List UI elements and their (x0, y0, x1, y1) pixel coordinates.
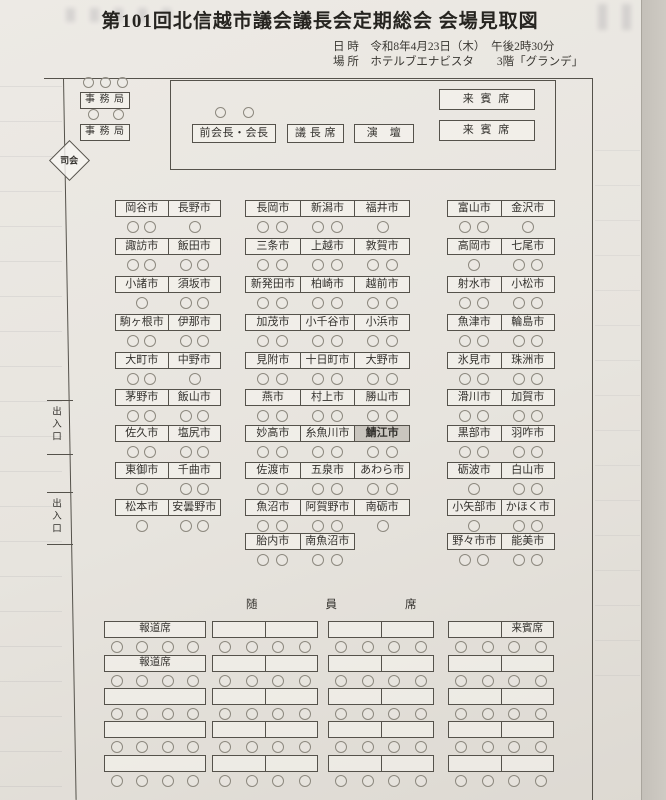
seat-circle (312, 259, 324, 271)
door-tick (47, 544, 73, 545)
seat-circle (180, 446, 192, 458)
seat-circle (335, 741, 347, 753)
attendant-seats-label: 随員席 (246, 596, 485, 612)
secretariat-box: 事 務 局 (80, 124, 130, 141)
head-table-label: 前会長・会長 (193, 125, 275, 142)
seat-circle (386, 335, 398, 347)
attendant-cell (213, 689, 265, 704)
city-name-cell: 塩尻市 (168, 426, 221, 441)
seat-circle (386, 446, 398, 458)
seat-circle (127, 373, 139, 385)
attendant-cell (329, 756, 381, 771)
seat-circle (388, 641, 400, 653)
seat-circle (459, 221, 471, 233)
seat-circle (312, 410, 324, 422)
seat-circle (335, 675, 347, 687)
attendant-cell (449, 656, 501, 671)
seat-circle (367, 335, 379, 347)
city-table: 高岡市七尾市 (447, 238, 555, 255)
seat-circle (111, 675, 123, 687)
seat-circle (477, 410, 489, 422)
seat-circle (276, 554, 288, 566)
city-name-cell: 福井市 (354, 201, 409, 216)
seat-circle (531, 259, 543, 271)
seat-circle (335, 641, 347, 653)
seat-circle (367, 446, 379, 458)
seat-circle (246, 641, 258, 653)
seat-circle (513, 410, 525, 422)
seat-circle (455, 641, 467, 653)
seat-circle (312, 373, 324, 385)
seat-circle (197, 483, 209, 495)
seat-circle (535, 675, 547, 687)
city-name-cell: 見附市 (246, 353, 300, 368)
meeting-datetime: 日 時 令和8年4月23日（木） 午後2時30分 (333, 40, 583, 55)
city-table: 野々市市能美市 (447, 533, 555, 550)
city-name-cell: 糸魚川市 (300, 426, 355, 441)
seat-circle (415, 641, 427, 653)
seat-circle (331, 373, 343, 385)
city-table: 佐久市塩尻市 (115, 425, 221, 442)
seat-circle (187, 675, 199, 687)
attendant-cell (265, 722, 318, 737)
city-table: 黒部市羽咋市 (447, 425, 555, 442)
seat-circle (111, 641, 123, 653)
city-table: 魚沼市阿賀野市南砺市 (245, 499, 410, 516)
attendant-cell (381, 656, 434, 671)
city-name-cell: 伊那市 (168, 315, 221, 330)
city-name-cell: 諏訪市 (116, 239, 168, 254)
paper-edge (641, 0, 666, 800)
seat-circle (477, 297, 489, 309)
seat-circle (127, 410, 139, 422)
seat-circle (535, 708, 547, 720)
seat-circle (299, 708, 311, 720)
city-name-cell: 茅野市 (116, 390, 168, 405)
seat-circle (246, 741, 258, 753)
attendant-cell (501, 656, 554, 671)
seat-circle (362, 775, 374, 787)
attendant-table (448, 721, 554, 738)
attendant-table (104, 688, 206, 705)
seat-circle (257, 297, 269, 309)
attendant-cell (265, 656, 318, 671)
city-table: 妙高市糸魚川市鯖江市 (245, 425, 410, 442)
press-table: 報道席 (104, 655, 206, 672)
attendant-cell (105, 689, 205, 704)
seat-circle (477, 446, 489, 458)
city-name-cell: 七尾市 (501, 239, 555, 254)
seat-circle (257, 373, 269, 385)
seat-circle (459, 554, 471, 566)
seat-circle (144, 446, 156, 458)
seat-circle (299, 641, 311, 653)
seat-circle (459, 297, 471, 309)
seat-circle (331, 446, 343, 458)
city-name-cell: 須坂市 (168, 277, 221, 292)
city-name-cell: 佐久市 (116, 426, 168, 441)
seat-circle (257, 446, 269, 458)
seat-circle (331, 221, 343, 233)
seat-circle (531, 410, 543, 422)
door-tick (47, 492, 73, 493)
city-table: 佐渡市五泉市あわら市 (245, 462, 410, 479)
attendant-cell (105, 756, 205, 771)
city-table: 東御市千曲市 (115, 462, 221, 479)
seat-circle (459, 373, 471, 385)
seat-circle (136, 741, 148, 753)
seat-circle (367, 483, 379, 495)
seat-circle (331, 483, 343, 495)
seat-circle (144, 335, 156, 347)
city-name-cell: あわら市 (354, 463, 409, 478)
meeting-meta: 日 時 令和8年4月23日（木） 午後2時30分 場 所 ホテルブエナビスタ 3… (333, 40, 583, 70)
seat-circle (482, 775, 494, 787)
door-tick (47, 400, 73, 401)
seat-circle (455, 708, 467, 720)
attendant-cell (449, 622, 501, 637)
seat-circle (88, 109, 99, 120)
city-table: 加茂市小千谷市小浜市 (245, 314, 410, 331)
seat-circle (243, 107, 254, 118)
seat-circle (136, 641, 148, 653)
secretariat-label: 事 務 局 (81, 93, 129, 108)
seat-circle (531, 373, 543, 385)
city-name-cell: 五泉市 (300, 463, 355, 478)
seat-circle (136, 675, 148, 687)
seat-circle (272, 741, 284, 753)
seat-circle (455, 775, 467, 787)
city-table: 新発田市柏崎市越前市 (245, 276, 410, 293)
seat-circle (377, 221, 389, 233)
city-name-cell: 中野市 (168, 353, 221, 368)
seat-circle (246, 675, 258, 687)
seat-circle (272, 775, 284, 787)
city-name-cell: 長岡市 (246, 201, 300, 216)
attendant-cell (265, 756, 318, 771)
page-title: 第101回北信越市議会議長会定期総会 会場見取図 (0, 6, 640, 33)
seat-circle (197, 520, 209, 532)
seat-circle (513, 554, 525, 566)
seat-circle (459, 335, 471, 347)
seat-circle (513, 259, 525, 271)
seat-circle (312, 297, 324, 309)
city-name-cell: 胎内市 (246, 534, 300, 549)
seat-circle (513, 335, 525, 347)
seat-circle (246, 775, 258, 787)
seat-circle (531, 446, 543, 458)
attendant-table (328, 655, 434, 672)
seat-circle (386, 373, 398, 385)
city-name-cell: 鯖江市 (354, 426, 409, 441)
seat-circle (136, 520, 148, 532)
attendant-cell (381, 756, 434, 771)
seat-circle (331, 410, 343, 422)
seat-circle (535, 641, 547, 653)
attendant-table (328, 621, 434, 638)
seat-circle (272, 641, 284, 653)
seat-circle (189, 221, 201, 233)
seat-circle (144, 259, 156, 271)
seat-circle (111, 741, 123, 753)
attendant-cell (213, 756, 265, 771)
attendant-table (212, 688, 318, 705)
city-table: 小諸市須坂市 (115, 276, 221, 293)
seat-circle (513, 520, 525, 532)
city-name-cell: 加賀市 (501, 390, 555, 405)
city-name-cell: 野々市市 (448, 534, 501, 549)
seat-circle (180, 335, 192, 347)
city-name-cell: 羽咋市 (501, 426, 555, 441)
seat-circle (312, 520, 324, 532)
guest-seat-label: 来 賓 席 (440, 90, 534, 109)
seat-circle (367, 410, 379, 422)
seat-circle (257, 520, 269, 532)
seat-circle (180, 297, 192, 309)
city-name-cell: 輪島市 (501, 315, 555, 330)
city-name-cell: 村上市 (300, 390, 355, 405)
seat-circle (362, 641, 374, 653)
seat-circle (459, 410, 471, 422)
city-table: 富山市金沢市 (447, 200, 555, 217)
seat-circle (508, 741, 520, 753)
entrance-exit-label: 出入口 (48, 498, 62, 536)
seat-circle (513, 483, 525, 495)
seat-circle (335, 775, 347, 787)
press-seat-label: 報道席 (105, 622, 205, 637)
seat-circle (276, 520, 288, 532)
seat-circle (276, 483, 288, 495)
seat-circle (197, 259, 209, 271)
city-name-cell: 能美市 (501, 534, 555, 549)
city-name-cell: 飯山市 (168, 390, 221, 405)
attendant-table (212, 755, 318, 772)
city-name-cell: 魚津市 (448, 315, 501, 330)
showthrough-lines-right (595, 150, 640, 690)
seat-circle (111, 775, 123, 787)
guest-seat-box: 来 賓 席 (439, 120, 535, 141)
city-name-cell: 三条市 (246, 239, 300, 254)
seat-circle (219, 641, 231, 653)
meeting-place: 場 所 ホテルブエナビスタ 3階「グランデ」 (333, 55, 583, 70)
city-name-cell: 小矢部市 (448, 500, 501, 515)
seat-circle (162, 708, 174, 720)
seat-circle (162, 641, 174, 653)
city-name-cell: 長野市 (168, 201, 221, 216)
city-name-cell: 敦賀市 (354, 239, 409, 254)
seat-circle (162, 741, 174, 753)
seat-circle (362, 675, 374, 687)
seat-circle (522, 221, 534, 233)
seat-circle (415, 775, 427, 787)
city-name-cell: 白山市 (501, 463, 555, 478)
city-table: 見附市十日町市大野市 (245, 352, 410, 369)
seat-circle (415, 708, 427, 720)
attendant-table (328, 721, 434, 738)
seat-circle (482, 708, 494, 720)
attendant-cell (329, 689, 381, 704)
guest-seat-label: 来 賓 席 (440, 121, 534, 140)
city-name-cell: 金沢市 (501, 201, 555, 216)
press-seat-label: 報道席 (105, 656, 205, 671)
attendant-cell (449, 689, 501, 704)
seat-circle (331, 297, 343, 309)
attendant-cell (501, 722, 554, 737)
city-name-cell: 勝山市 (354, 390, 409, 405)
seat-circle (299, 775, 311, 787)
seat-circle (219, 708, 231, 720)
seat-circle (127, 335, 139, 347)
seat-circle (187, 741, 199, 753)
seat-circle (197, 410, 209, 422)
seat-circle (508, 775, 520, 787)
seat-circle (535, 741, 547, 753)
city-table: 諏訪市飯田市 (115, 238, 221, 255)
seat-circle (136, 775, 148, 787)
seat-circle (513, 297, 525, 309)
city-name-cell: 珠洲市 (501, 353, 555, 368)
attendant-table (328, 688, 434, 705)
attendant-table (448, 655, 554, 672)
seat-circle (468, 483, 480, 495)
seat-circle (257, 259, 269, 271)
seat-circle (136, 483, 148, 495)
attendant-cell (381, 689, 434, 704)
seat-circle (415, 675, 427, 687)
seat-circle (388, 741, 400, 753)
seat-circle (276, 259, 288, 271)
city-name-cell: 新潟市 (300, 201, 355, 216)
seat-circle (219, 775, 231, 787)
city-name-cell: 砺波市 (448, 463, 501, 478)
seat-circle (187, 775, 199, 787)
city-table: 胎内市南魚沼市 (245, 533, 355, 550)
city-table: 駒ヶ根市伊那市 (115, 314, 221, 331)
attendant-table (104, 721, 206, 738)
seat-circle (189, 373, 201, 385)
seat-circle (482, 741, 494, 753)
attendant-cell (381, 622, 434, 637)
seat-circle (312, 554, 324, 566)
seat-circle (127, 446, 139, 458)
seat-circle (219, 675, 231, 687)
guest-seat-box: 来 賓 席 (439, 89, 535, 110)
attendant-table (104, 755, 206, 772)
seat-circle (468, 520, 480, 532)
seat-circle (531, 520, 543, 532)
head-table: 議 長 席 (287, 124, 344, 143)
city-name-cell: 阿賀野市 (300, 500, 355, 515)
city-name-cell: 南魚沼市 (300, 534, 355, 549)
city-name-cell: 柏崎市 (300, 277, 355, 292)
seat-circle (367, 373, 379, 385)
room-wall-left (63, 78, 77, 800)
document-photo: 第101回北信越市議会議長会定期総会 会場見取図 日 時 令和8年4月23日（木… (0, 0, 666, 800)
seat-circle (272, 675, 284, 687)
seat-circle (482, 675, 494, 687)
attendant-table (448, 688, 554, 705)
seat-circle (276, 446, 288, 458)
city-name-cell: 安曇野市 (168, 500, 221, 515)
seat-circle (312, 483, 324, 495)
entrance-exit-label: 出入口 (48, 406, 62, 444)
attendant-cell (449, 722, 501, 737)
seat-circle (312, 446, 324, 458)
seat-circle (482, 641, 494, 653)
city-name-cell: 新発田市 (246, 277, 300, 292)
seat-circle (144, 373, 156, 385)
seat-circle (388, 675, 400, 687)
press-table: 報道席 (104, 621, 206, 638)
head-table-label: 演 壇 (355, 125, 413, 142)
head-table-label: 議 長 席 (288, 125, 343, 142)
seat-circle (299, 741, 311, 753)
seat-circle (276, 221, 288, 233)
seat-circle (246, 708, 258, 720)
seat-circle (276, 410, 288, 422)
city-name-cell: 駒ヶ根市 (116, 315, 168, 330)
city-name-cell: 千曲市 (168, 463, 221, 478)
city-name-cell: 佐渡市 (246, 463, 300, 478)
seat-circle (455, 675, 467, 687)
city-name-cell: 魚沼市 (246, 500, 300, 515)
head-table: 演 壇 (354, 124, 414, 143)
seat-circle (299, 675, 311, 687)
seat-circle (100, 77, 111, 88)
seat-circle (127, 221, 139, 233)
seat-circle (180, 410, 192, 422)
seat-circle (312, 221, 324, 233)
attendant-cell (329, 656, 381, 671)
city-name-cell: 射水市 (448, 277, 501, 292)
city-name-cell: 燕市 (246, 390, 300, 405)
attendant-table (212, 621, 318, 638)
city-name-cell: 上越市 (300, 239, 355, 254)
attendant-cell (265, 689, 318, 704)
seat-circle (331, 520, 343, 532)
door-tick (47, 454, 73, 455)
seat-circle (367, 297, 379, 309)
attendant-cell (329, 622, 381, 637)
city-table: 氷見市珠洲市 (447, 352, 555, 369)
seat-circle (531, 335, 543, 347)
city-table: 大町市中野市 (115, 352, 221, 369)
seat-circle (508, 641, 520, 653)
seat-circle (531, 554, 543, 566)
seat-circle (459, 446, 471, 458)
attendant-cell (381, 722, 434, 737)
seat-circle (257, 410, 269, 422)
city-table: 砺波市白山市 (447, 462, 555, 479)
seat-circle (187, 641, 199, 653)
city-name-cell: 越前市 (354, 277, 409, 292)
seat-circle (331, 259, 343, 271)
seat-circle (388, 708, 400, 720)
seat-circle (272, 708, 284, 720)
city-name-cell: かほく市 (501, 500, 555, 515)
attendant-cell (329, 722, 381, 737)
city-table: 燕市村上市勝山市 (245, 389, 410, 406)
seat-circle (386, 410, 398, 422)
city-name-cell: 富山市 (448, 201, 501, 216)
seat-circle (513, 446, 525, 458)
attendant-cell (501, 756, 554, 771)
room-wall-right (592, 78, 593, 800)
city-name-cell: 松本市 (116, 500, 168, 515)
seat-circle (513, 373, 525, 385)
seat-circle (477, 335, 489, 347)
guest-seat-label: 来賓席 (501, 622, 554, 637)
